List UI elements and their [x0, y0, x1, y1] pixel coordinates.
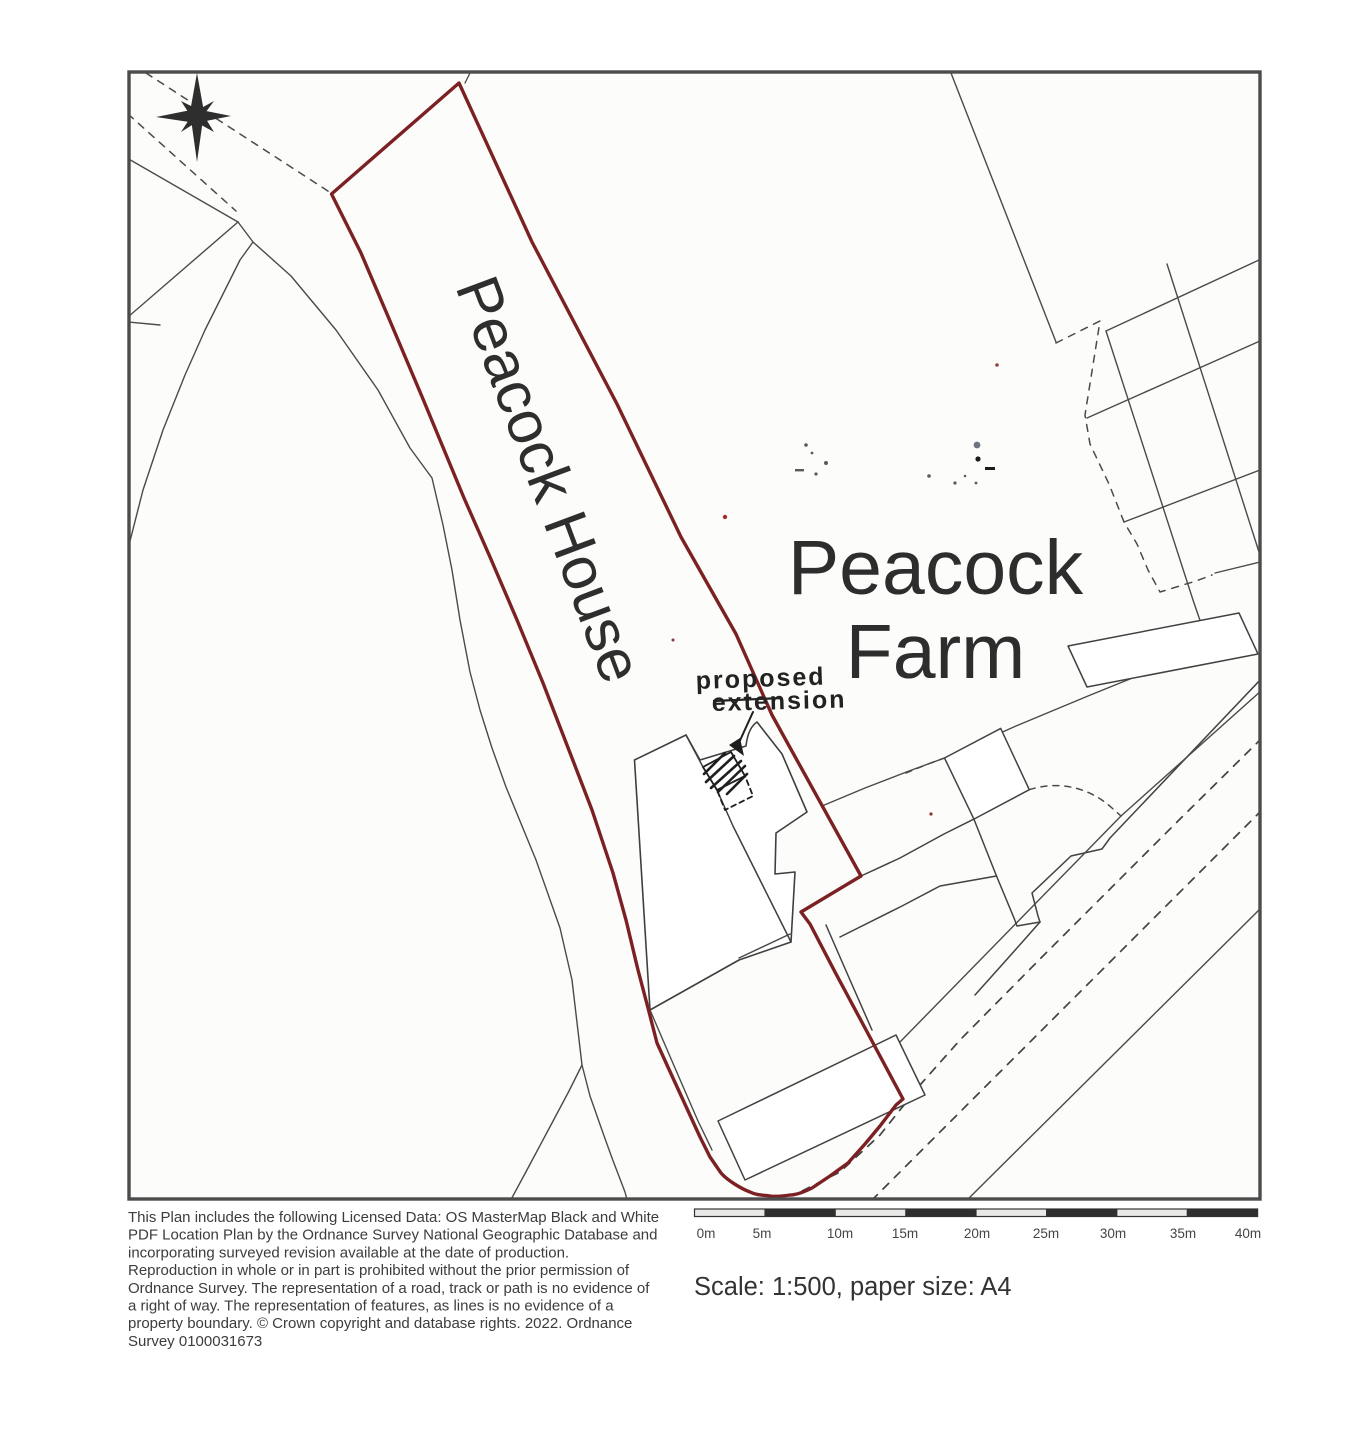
svg-text:10m: 10m	[827, 1226, 853, 1241]
svg-text:Farm: Farm	[846, 609, 1026, 695]
svg-text:a right of way. The representa: a right of way. The representation of fe…	[128, 1298, 614, 1315]
svg-text:Peacock: Peacock	[788, 525, 1084, 611]
svg-text:0m: 0m	[697, 1226, 716, 1241]
svg-text:This Plan includes the followi: This Plan includes the following License…	[128, 1209, 659, 1226]
svg-text:Ordnance Survey. The represent: Ordnance Survey. The representation of a…	[128, 1280, 650, 1297]
svg-text:property boundary. © Crown cop: property boundary. © Crown copyright and…	[128, 1315, 632, 1332]
svg-text:PDF Location Plan by the Ordna: PDF Location Plan by the Ordnance Survey…	[128, 1227, 657, 1244]
svg-text:35m: 35m	[1170, 1226, 1196, 1241]
svg-text:40m: 40m	[1235, 1226, 1261, 1241]
svg-text:25m: 25m	[1033, 1226, 1059, 1241]
svg-text:Scale: 1:500, paper size: A4: Scale: 1:500, paper size: A4	[694, 1273, 1012, 1301]
svg-text:20m: 20m	[964, 1226, 990, 1241]
svg-text:incorporating surveyed revisio: incorporating surveyed revision availabl…	[128, 1244, 569, 1261]
svg-text:5m: 5m	[753, 1226, 772, 1241]
svg-text:15m: 15m	[892, 1226, 918, 1241]
svg-text:30m: 30m	[1100, 1226, 1126, 1241]
svg-text:Survey 0100031673: Survey 0100031673	[128, 1333, 262, 1350]
svg-text:Reproduction in whole or in pa: Reproduction in whole or in part is proh…	[128, 1262, 630, 1279]
